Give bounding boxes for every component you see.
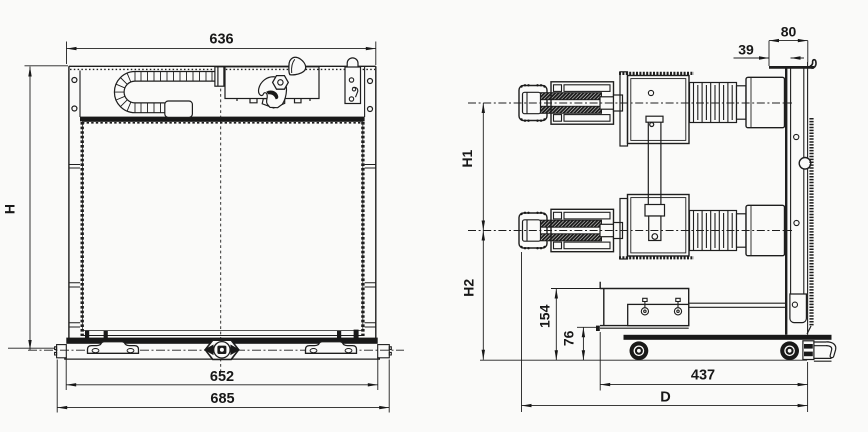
svg-text:154: 154 bbox=[537, 304, 553, 328]
svg-text:685: 685 bbox=[210, 391, 234, 407]
svg-text:636: 636 bbox=[209, 32, 233, 48]
svg-text:H: H bbox=[2, 204, 18, 214]
svg-text:437: 437 bbox=[691, 368, 715, 384]
svg-text:652: 652 bbox=[210, 369, 234, 385]
svg-text:76: 76 bbox=[561, 330, 577, 346]
svg-text:D: D bbox=[660, 390, 670, 406]
svg-text:39: 39 bbox=[738, 42, 754, 58]
svg-text:80: 80 bbox=[781, 24, 797, 40]
svg-text:H1: H1 bbox=[459, 149, 475, 167]
svg-text:H2: H2 bbox=[460, 279, 476, 297]
